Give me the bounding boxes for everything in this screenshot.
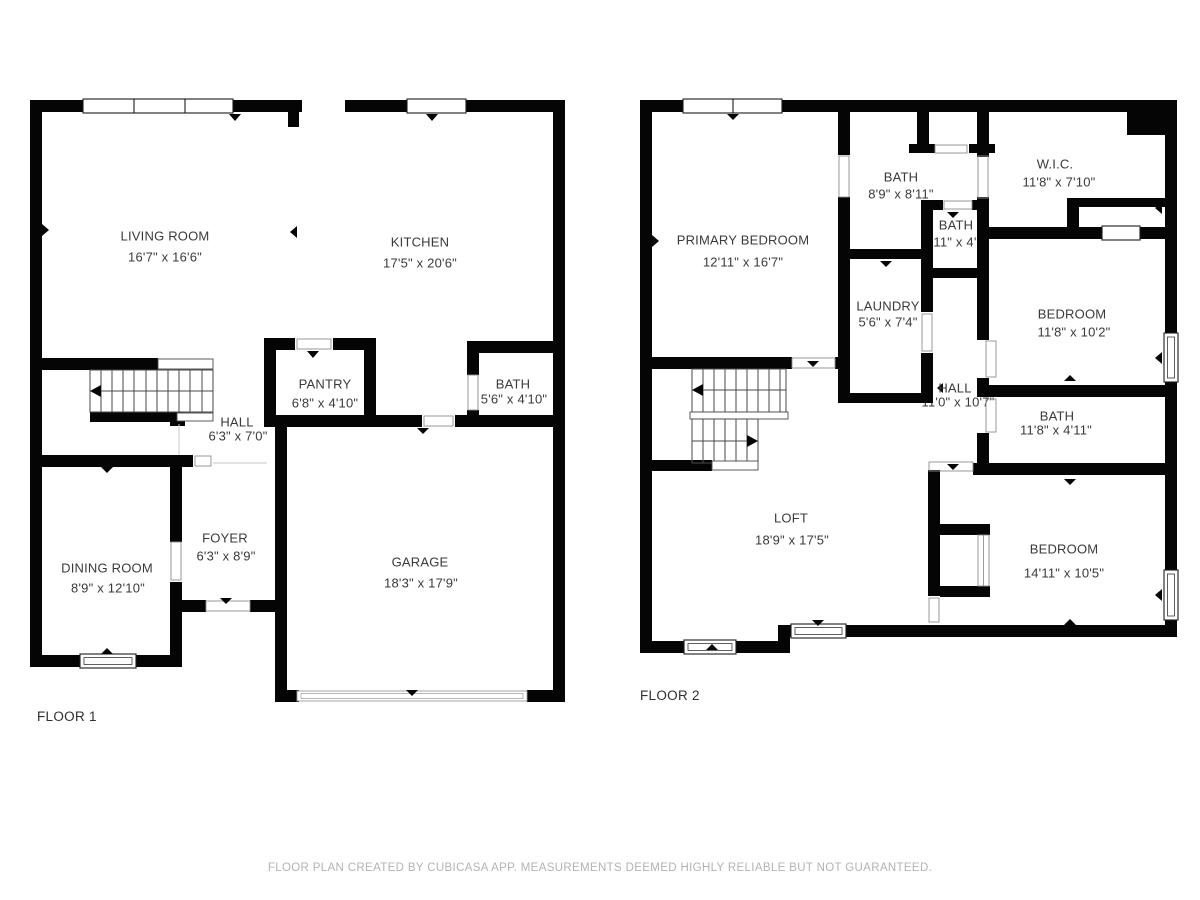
room-dims-hall-f2: 11'0" x 10'7"	[922, 396, 995, 409]
room-label-garage: GARAGE	[392, 556, 449, 569]
room-dims-bath-f1: 5'6" x 4'10"	[481, 393, 547, 406]
room-label-bath-upper: BATH	[884, 171, 919, 184]
room-dims-bath-upper: 8'9" x 8'11"	[868, 188, 934, 201]
room-label-bedroom-lower: BEDROOM	[1030, 543, 1099, 556]
room-label-wic: W.I.C.	[1037, 158, 1074, 171]
room-dims-hall-f1: 6'3" x 7'0"	[208, 430, 267, 443]
room-label-bath-small: BATH	[939, 219, 974, 232]
room-label-primary-bedroom: PRIMARY BEDROOM	[677, 234, 810, 247]
room-dims-laundry: 5'6" x 7'4"	[858, 316, 917, 329]
room-label-foyer: FOYER	[202, 532, 248, 545]
room-label-living-room: LIVING ROOM	[121, 230, 210, 243]
footer-caption: FLOOR PLAN CREATED BY CUBICASA APP. MEAS…	[0, 862, 1200, 874]
floor1-ticks	[42, 114, 519, 696]
room-dims-bath-small: 5'11" x 4'2"	[923, 236, 989, 249]
room-label-bedroom-upper: BEDROOM	[1038, 308, 1107, 321]
room-label-laundry: LAUNDRY	[856, 300, 919, 313]
room-label-kitchen: KITCHEN	[391, 236, 449, 249]
room-label-bath-wide: BATH	[1040, 410, 1075, 423]
room-dims-loft: 18'9" x 17'5"	[755, 534, 829, 547]
room-label-hall-f2: HALL	[938, 382, 971, 395]
room-dims-garage: 18'3" x 17'9"	[384, 577, 458, 590]
room-dims-pantry: 6'8" x 4'10"	[292, 397, 358, 410]
room-label-pantry: PANTRY	[299, 378, 352, 391]
room-label-loft: LOFT	[774, 512, 808, 525]
room-label-hall-f1: HALL	[220, 416, 253, 429]
room-dims-bath-wide: 11'8" x 4'11"	[1020, 424, 1092, 437]
room-dims-bedroom-upper: 11'8" x 10'2"	[1038, 326, 1111, 339]
room-dims-living-room: 16'7" x 16'6"	[128, 251, 202, 264]
room-dims-primary-bedroom: 12'11" x 16'7"	[703, 256, 783, 269]
room-dims-foyer: 6'3" x 8'9"	[196, 550, 255, 563]
room-label-dining-room: DINING ROOM	[61, 562, 153, 575]
room-dims-kitchen: 17'5" x 20'6"	[383, 257, 457, 270]
floor1-title: FLOOR 1	[37, 709, 97, 724]
floor2-stairs	[690, 369, 788, 470]
room-dims-dining-room: 8'9" x 12'10"	[71, 582, 145, 595]
room-dims-wic: 11'8" x 7'10"	[1023, 176, 1096, 189]
floor2-title: FLOOR 2	[640, 688, 700, 703]
floor-plan-canvas: LIVING ROOM 16'7" x 16'6" KITCHEN 17'5" …	[0, 0, 1200, 900]
floor1-stairs	[90, 359, 213, 421]
room-label-bath-f1: BATH	[496, 378, 531, 391]
room-dims-bedroom-lower: 14'11" x 10'5"	[1024, 567, 1104, 580]
floor-plan-drawing	[0, 0, 1200, 900]
